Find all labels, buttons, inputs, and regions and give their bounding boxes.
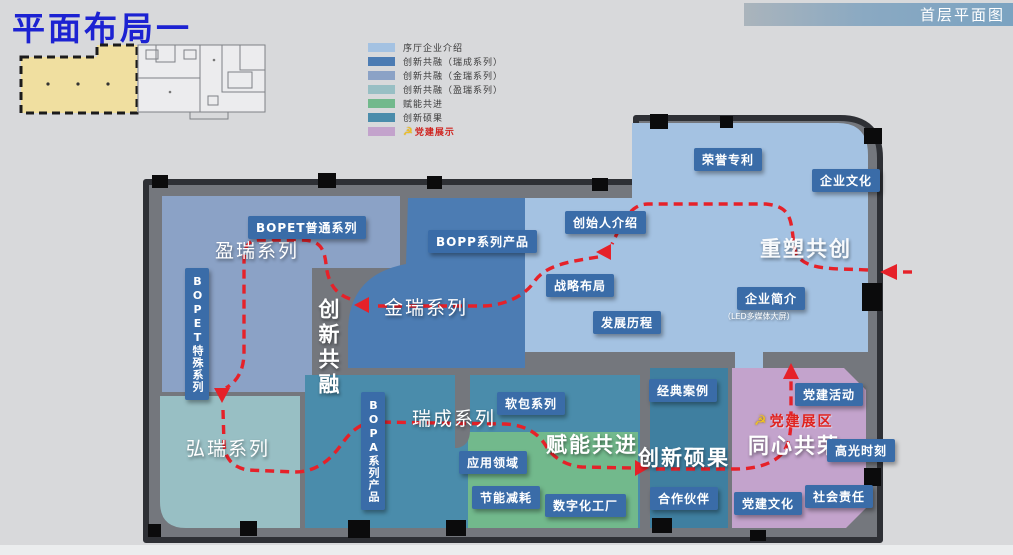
room-label-culture: 企业文化 xyxy=(812,169,880,192)
room-label-profile: 企业简介 xyxy=(737,287,805,310)
zone-title-ruicheng: 瑞成系列 xyxy=(412,404,496,431)
room-label-highlight: 高光时刻 xyxy=(827,439,895,462)
legend-color-chip xyxy=(368,99,395,108)
zone-title-chuangxin-shuoguo: 创新硕果 xyxy=(638,442,730,472)
room-label-honor: 荣誉专利 xyxy=(694,148,762,171)
zone-title-chuangxin-gongrong: 创新共融 xyxy=(313,298,343,398)
room-label-social: 社会责任 xyxy=(805,485,873,508)
legend-color-chip xyxy=(368,113,395,122)
party-emblem-icon: ☭ xyxy=(754,413,767,429)
legend-color-chip xyxy=(368,85,395,94)
room-label-bopp: BOPP系列产品 xyxy=(428,230,537,253)
legend-item: ☭ 党建展示 xyxy=(368,125,455,137)
party-emblem-icon: ☭ xyxy=(403,126,413,137)
party-zone-label: 党建展区 xyxy=(770,411,834,431)
room-label-energy: 节能减耗 xyxy=(472,486,540,509)
legend-item: 创新共融（瑞成系列） xyxy=(368,55,503,67)
zone-lobby-bridge xyxy=(735,346,763,370)
room-label-partners: 合作伙伴 xyxy=(650,487,718,510)
zone-title-hongrui: 弘瑞系列 xyxy=(186,434,270,461)
legend-item: 创新共融（金瑞系列） xyxy=(368,69,503,81)
legend-item: 创新硕果 xyxy=(368,111,443,123)
zone-title-yingrui: 盈瑞系列 xyxy=(215,236,299,263)
room-label-digital: 数字化工厂 xyxy=(545,494,626,517)
legend-item: 序厅企业介绍 xyxy=(368,41,463,53)
zone-title-funeng-gongjin: 赋能共进 xyxy=(546,429,638,459)
legend-color-chip xyxy=(368,71,395,80)
room-label-party-activity: 党建活动 xyxy=(795,383,863,406)
thumbnail-highlight-plan xyxy=(21,45,137,113)
party-zone-tag: ☭ 党建展区 xyxy=(754,411,834,431)
legend-item: 创新共融（盈瑞系列） xyxy=(368,83,503,95)
room-label-soft-pack: 软包系列 xyxy=(497,392,565,415)
slide: 平面布局一 首层平面图 xyxy=(0,0,1013,555)
room-label-bopa: BOPA系列产品 xyxy=(361,392,385,510)
thumbnail-line-plan xyxy=(138,45,265,119)
zone-title-jinrui: 金瑞系列 xyxy=(384,293,468,320)
room-label-party-culture: 党建文化 xyxy=(734,492,802,515)
legend-color-chip xyxy=(368,127,395,136)
room-label-founder: 创始人介绍 xyxy=(565,211,646,234)
legend-color-chip xyxy=(368,57,395,66)
room-label-history: 发展历程 xyxy=(593,311,661,334)
zone-title-chongsu-gongchuang: 重塑共创 xyxy=(760,233,852,263)
room-label-bopet-special: BOPET特殊系列 xyxy=(185,268,209,400)
room-label-cases: 经典案例 xyxy=(649,379,717,402)
legend-color-chip xyxy=(368,43,395,52)
legend-item: 赋能共进 xyxy=(368,97,443,109)
room-label-application: 应用领域 xyxy=(459,451,527,474)
room-label-bopet-normal: BOPET普通系列 xyxy=(248,216,366,239)
room-label-strategy: 战略布局 xyxy=(546,274,614,297)
room-label-profile-sub: （LED多媒体大屏） xyxy=(723,311,795,322)
